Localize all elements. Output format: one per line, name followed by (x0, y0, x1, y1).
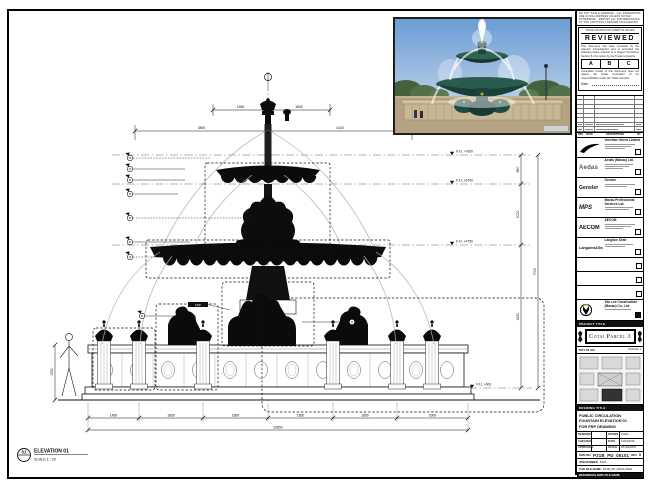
consultant-empty-box (577, 258, 643, 272)
svg-text:1800: 1800 (295, 105, 303, 109)
description-col: DESCRIPTION (595, 133, 635, 136)
company-checkbox[interactable] (635, 209, 641, 215)
cad-file-label: CAD FILE NAME (579, 467, 601, 471)
upper-statue-group (236, 184, 300, 247)
designed-label: DESIGNED (577, 432, 592, 439)
dwg-no-value: P31B_PD_05101 (593, 453, 629, 458)
drawn-label: DRAWN (607, 432, 620, 439)
level-label: F.F.L +600 (476, 382, 491, 386)
designed-value (592, 432, 607, 439)
banner-ornament-right (638, 331, 643, 343)
reference-photo (393, 17, 572, 135)
banner-ornament-left (578, 331, 583, 343)
approved-label: APPROVED (577, 446, 592, 452)
aedas-logo: Aedas (579, 159, 603, 176)
highlighted-parcel (602, 389, 622, 401)
svg-text:1450: 1450 (110, 413, 118, 417)
bottom-dimension-labels: 1450 1850 1850 1850 1850 2000 10850 (110, 413, 437, 429)
key-plan-label: KEY PLAN (579, 348, 595, 352)
level-label: F.F.L +4750 (456, 239, 473, 243)
left-dimension-label: 1550 (50, 368, 54, 376)
stamp-date-row: Date : (581, 82, 639, 86)
company-block-langdon-seah: Langdon&Seah Langdon Seah (577, 238, 643, 258)
stamp-title: REVIEWED (581, 34, 639, 44)
statue-tag-label: FRP (195, 303, 201, 307)
svg-text:850: 850 (516, 167, 520, 173)
pedestal-support (246, 266, 290, 300)
approved-value: - (592, 446, 607, 452)
grade-a-cell[interactable]: A (582, 60, 601, 68)
dwg-no-label: DWG NO. (579, 454, 591, 457)
svg-text:4100: 4100 (336, 126, 344, 130)
level-label: F.F.L +6750 (456, 178, 473, 182)
statue-tag: FRP (188, 302, 230, 310)
mps-logo: MPS (579, 199, 603, 216)
elevation-scale: SCALE 1 : 25 (34, 458, 56, 462)
company-name: Langdon Seah (605, 239, 643, 243)
drawn-value: CHAO (620, 432, 643, 439)
consultant-empty-box (577, 286, 643, 300)
project-name: Cotai Parcel 3 (589, 333, 631, 340)
rev-col: REV (577, 133, 584, 136)
project-title-section: PROJECT TITLE Cotai Parcel 3 (577, 321, 643, 347)
stamp-date-line[interactable] (592, 82, 639, 86)
svg-text:2000: 2000 (429, 413, 437, 417)
job-number-label: JOB NUMBER (579, 460, 598, 464)
svg-text:7000: 7000 (533, 268, 537, 276)
company-block-venetian: Venetian Orient Limited (577, 138, 643, 158)
signature-fields: DESIGNED DRAWN CHAO CHECKED - DATE 12/04… (577, 432, 643, 452)
key-plan-map (578, 354, 642, 404)
reference-dwg-row: REFERENCE DWG FILE NAME (577, 473, 643, 479)
company-name: Venetian Orient Limited (605, 139, 643, 143)
elevation-title: ELEVATION 01 (34, 449, 69, 455)
rev-value: 0 (639, 453, 641, 457)
consultant-empty-box (577, 272, 643, 286)
photo-watermark (544, 126, 568, 131)
by-col: BY (635, 133, 643, 136)
reference-dwg-label: REFERENCE DWG FILE NAME (579, 473, 620, 477)
company-name: Gensler (605, 179, 643, 183)
review-stamp: TRADE CONTRACTOR SUBMITTAL REVIEW REVIEW… (577, 26, 643, 96)
elevation-number: 01 (22, 449, 27, 454)
fountain-photo (394, 18, 571, 134)
elevation-marker: 01 ELEVATION 01 SCALE 1 : 25 (18, 449, 89, 462)
key-plan-section: KEY PLAN PARCEL 3 (577, 347, 643, 405)
drawing-title-section: DRAWING TITLE PUBLIC CIRCULATION FOUNTAI… (577, 405, 643, 432)
svg-text:10850: 10850 (273, 425, 283, 429)
key-plan-sublabel: PARCEL 3 (628, 348, 641, 352)
company-checkbox[interactable] (636, 263, 642, 269)
balustrade-wall (58, 345, 540, 400)
upper-basin (216, 166, 320, 183)
company-checkbox[interactable] (635, 169, 641, 175)
svg-text:1550: 1550 (237, 105, 245, 109)
grade-c-cell[interactable]: C (619, 60, 638, 68)
svg-text:4150: 4150 (516, 313, 520, 321)
job-number-value: 5123 (600, 460, 606, 464)
scale-value: AS SHOWN (620, 446, 643, 452)
main-basin (150, 243, 386, 266)
company-block-mps: MPS Macau Professional Services Ltd. (577, 198, 643, 218)
company-block-gensler: Gensler Gensler (577, 178, 643, 198)
svg-text:2000: 2000 (516, 211, 520, 219)
langdon-seah-logo: Langdon&Seah (579, 239, 603, 256)
contractor-block: Yau Lee Construction (Macau) Co., Ltd. (577, 300, 643, 321)
company-name: Aedas (Macau) Ltd. (605, 159, 643, 163)
company-block-aecom: AECOM AECOM (577, 218, 643, 238)
drawing-title-line: FOR FRP DRAWING (579, 424, 641, 430)
company-name: AECOM (605, 219, 643, 223)
yau-lee-logo (579, 301, 603, 319)
rev-label: REV (631, 454, 637, 457)
contractor-name-line2: (Macau) Co., Ltd. (605, 305, 643, 309)
scale-figure (60, 334, 78, 397)
svg-text:1850: 1850 (232, 413, 240, 417)
date-label: DATE (607, 439, 620, 446)
svg-text:1850: 1850 (297, 413, 305, 417)
aecom-logo: AECOM (579, 219, 601, 236)
title-block: DO NOT SCALE DRAWING · ALL DIMENSIONS AR… (575, 11, 643, 475)
venetian-swoosh-logo (579, 139, 603, 156)
company-checkbox[interactable] (635, 249, 641, 255)
gensler-logo: Gensler (579, 179, 603, 196)
svg-text:1850: 1850 (167, 413, 175, 417)
level-label: F.F.L +7600 (456, 149, 473, 153)
grade-b-cell[interactable]: B (601, 60, 620, 68)
revision-table-header: REV DATE DESCRIPTION BY (577, 132, 643, 137)
company-checkbox[interactable] (635, 149, 641, 155)
revision-table: REV DATE DESCRIPTION BY (577, 96, 643, 138)
cad-file-value: P31B_PD_05101.DWG (603, 467, 632, 471)
company-checkbox[interactable] (636, 277, 642, 283)
right-dimension-labels: 850 2000 4150 7000 (516, 167, 537, 321)
svg-text:3800: 3800 (198, 126, 206, 130)
center-statue-group (228, 294, 296, 346)
fountain-finial (260, 98, 291, 124)
company-name: Macau Professional Services Ltd. (605, 199, 643, 206)
svg-text:1850: 1850 (361, 413, 369, 417)
dwg-number-row: DWG NO. P31B_PD_05101 REV 0 (577, 452, 643, 459)
drawing-sheet: FRP 1550 1800 3800 4100 F.F.L +7600 F.F.… (0, 0, 650, 488)
contractor-checkbox[interactable] (635, 312, 641, 318)
review-grade-row: A B C (581, 59, 639, 69)
checked-value: - (592, 439, 607, 446)
stamp-body-2: Consultant review of this document does … (581, 70, 639, 80)
checked-label: CHECKED (577, 439, 592, 446)
scale-label: SCALE (607, 446, 620, 452)
stamp-body-1: This document has been reviewed by the r… (581, 45, 639, 59)
company-checkbox[interactable] (635, 189, 641, 195)
company-checkbox[interactable] (636, 291, 642, 297)
company-block-aedas: Aedas Aedas (Macau) Ltd. (577, 158, 643, 178)
stamp-date-label: Date : (581, 82, 590, 86)
company-checkbox[interactable] (635, 229, 641, 235)
date-col: DATE (584, 133, 595, 136)
job-number-row: JOB NUMBER 5123 (577, 459, 643, 466)
cad-file-row: CAD FILE NAME P31B_PD_05101.DWG (577, 466, 643, 473)
sheet-notes: DO NOT SCALE DRAWING · ALL DIMENSIONS AR… (577, 11, 643, 26)
date-value: 12/04/2016 (620, 439, 643, 446)
